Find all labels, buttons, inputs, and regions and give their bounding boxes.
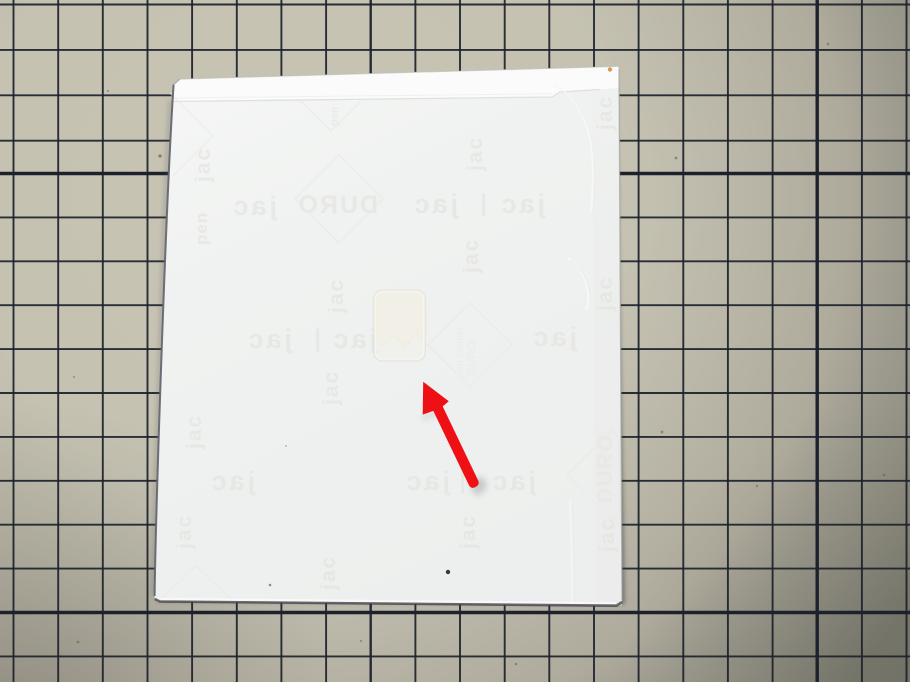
- svg-text:pen GmbH: pen GmbH: [455, 327, 466, 378]
- svg-text:jac: jac: [183, 414, 206, 450]
- svg-text:jac: jac: [489, 466, 537, 496]
- svg-text:jac: jac: [403, 466, 451, 496]
- svg-text:pen: pen: [329, 106, 341, 126]
- svg-text:|: |: [480, 190, 487, 217]
- svg-text:jac: jac: [594, 95, 617, 131]
- svg-text:jac: jac: [464, 136, 487, 172]
- svg-text:jac: jac: [192, 147, 215, 183]
- svg-text:DURO: DURO: [465, 341, 479, 376]
- svg-text:jac: jac: [173, 514, 196, 550]
- svg-text:DURO: DURO: [296, 191, 378, 219]
- svg-text:jac: jac: [596, 517, 619, 553]
- svg-text:jac: jac: [320, 370, 343, 406]
- svg-text:jac: jac: [230, 191, 278, 221]
- svg-text:jac: jac: [245, 324, 293, 354]
- svg-text:jac: jac: [457, 514, 480, 550]
- svg-text:|: |: [314, 325, 321, 352]
- svg-text:jac: jac: [594, 276, 617, 312]
- svg-text:DURO: DURO: [594, 433, 617, 503]
- svg-text:jac: jac: [330, 324, 378, 354]
- svg-text:jac: jac: [498, 189, 546, 219]
- svg-text:jac: jac: [208, 466, 256, 496]
- svg-text:jac: jac: [460, 238, 483, 274]
- svg-text:jac: jac: [325, 278, 348, 314]
- svg-text:jac: jac: [530, 322, 578, 352]
- svg-text:jac: jac: [317, 555, 340, 591]
- svg-text:pen: pen: [192, 212, 211, 245]
- svg-text:jac: jac: [411, 189, 459, 219]
